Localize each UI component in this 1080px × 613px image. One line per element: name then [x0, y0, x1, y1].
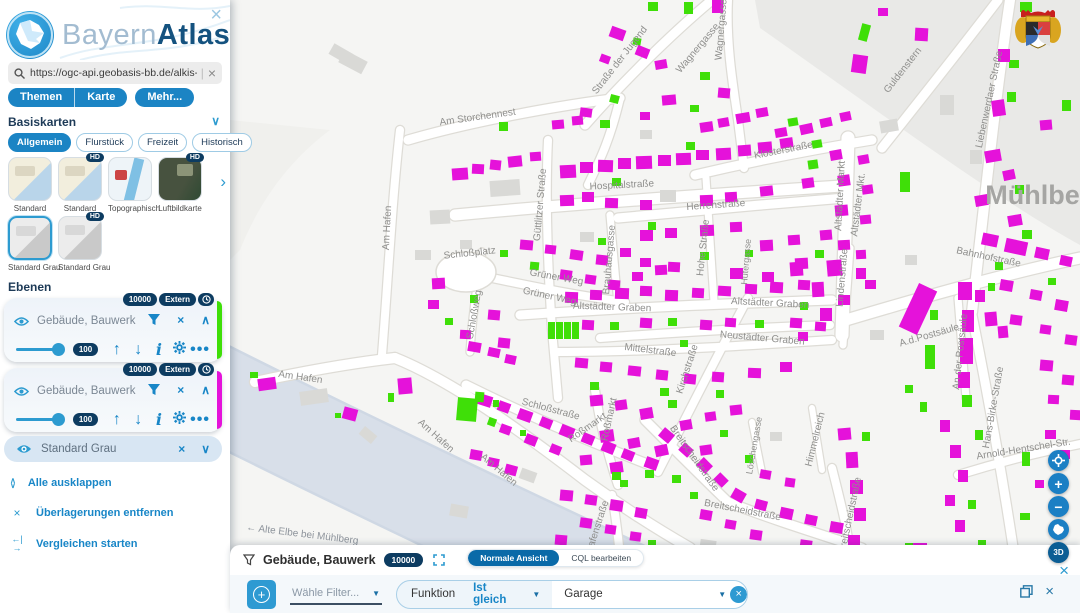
- building-footprint: [564, 322, 571, 339]
- extern-badge: Extern: [159, 363, 196, 376]
- bavaria-extent-button[interactable]: [1048, 519, 1069, 540]
- building-footprint: [760, 185, 774, 196]
- building-footprint: [820, 308, 832, 321]
- building-footprint: [730, 222, 742, 232]
- building-footprint: [1040, 119, 1053, 130]
- app-title: BayernAtlas: [62, 19, 230, 52]
- building-footprint: [759, 469, 771, 480]
- building-footprint: [851, 54, 868, 74]
- basemap-luftbildkarte[interactable]: HD Luftbildkarte: [158, 157, 202, 213]
- street-label: Am Hafen: [381, 205, 394, 250]
- layer-info-icon[interactable]: i: [149, 340, 169, 359]
- building-footprint: [1020, 513, 1030, 520]
- building-footprint: [686, 142, 695, 150]
- bayernatlas-app: Am StorchennestStraße der JugendWagnerga…: [0, 0, 1080, 613]
- basemap-standard[interactable]: Standard: [8, 157, 52, 213]
- opacity-slider[interactable]: [16, 418, 59, 421]
- app-title-bold: Atlas: [157, 19, 230, 51]
- building-footprint: [598, 160, 613, 173]
- basemap-thumbnail: [158, 157, 202, 201]
- tab-flurstueck[interactable]: Flurstück: [76, 133, 133, 152]
- sidebar-panel: × BayernAtlas | × T: [0, 0, 230, 613]
- building-footprint: [580, 232, 594, 242]
- building-footprint: [988, 283, 995, 291]
- link-label: Alle ausklappen: [28, 477, 112, 489]
- building-footprint: [662, 94, 677, 105]
- building-footprint: [699, 444, 712, 456]
- app-title-light: Bayern: [62, 19, 157, 51]
- nav-karte-button[interactable]: Karte: [74, 88, 127, 107]
- base-layer-row[interactable]: Standard Grau × ∨: [4, 436, 222, 462]
- building-footprint: [600, 361, 613, 372]
- building-footprint: [656, 369, 669, 380]
- layer-color-stripe-magenta: [217, 371, 222, 429]
- building-footprint: [787, 117, 798, 127]
- building-footprint: [690, 492, 698, 499]
- building-footprint: [1007, 92, 1016, 102]
- building-footprint: [862, 432, 870, 441]
- basemap-label: Luftbildkarte: [158, 204, 202, 213]
- basemaps-heading: Basiskarten: [8, 115, 76, 129]
- building-footprint: [760, 240, 774, 252]
- cql-edit-toggle[interactable]: CQL bearbeiten: [559, 550, 643, 566]
- search-icon: [14, 68, 25, 79]
- building-footprint: [748, 368, 761, 378]
- bavaria-shape-icon: [1053, 524, 1064, 535]
- building-footprint: [600, 120, 610, 128]
- building-footprint: [609, 499, 623, 512]
- building-footprint: [749, 529, 762, 541]
- normal-view-toggle[interactable]: Normale Ansicht: [468, 550, 559, 566]
- filter-value-input[interactable]: [564, 588, 718, 600]
- building-footprint: [335, 413, 341, 418]
- clock-icon: [202, 365, 211, 374]
- building-footprint: [718, 286, 732, 297]
- tab-freizeit[interactable]: Freizeit: [138, 133, 187, 152]
- building-footprint: [660, 190, 676, 202]
- building-footprint: [1022, 230, 1032, 239]
- building-footprint: [829, 149, 843, 161]
- building-footprint: [432, 278, 446, 290]
- basemap-label: Standard: [8, 204, 52, 213]
- building-footprint: [560, 165, 577, 179]
- building-footprint: [725, 318, 737, 328]
- building-footprint: [665, 228, 677, 238]
- building-footprint: [915, 28, 929, 42]
- nav-group: Themen Karte: [8, 88, 127, 107]
- building-footprint: [730, 404, 743, 415]
- expand-base-layer-icon[interactable]: ∨: [201, 442, 210, 456]
- building-footprint: [878, 8, 888, 16]
- building-footprint: [738, 145, 752, 157]
- time-badge: [198, 363, 214, 376]
- building-footprint: [609, 461, 623, 474]
- move-layer-up-icon[interactable]: ↑: [106, 411, 127, 429]
- building-footprint: [1062, 100, 1071, 111]
- building-footprint: [648, 2, 658, 11]
- building-footprint: [700, 72, 710, 80]
- filter-builder-row: + Wähle Filter... ▼ Funktion Ist gleich …: [230, 575, 1080, 613]
- building-footprint: [397, 377, 412, 394]
- building-footprint: [801, 177, 814, 189]
- building-footprint: [430, 209, 451, 224]
- building-footprint: [572, 116, 584, 126]
- building-footprint: [640, 130, 652, 139]
- filter-funnel-icon[interactable]: [148, 384, 160, 396]
- filter-panel: Gebäude, Bauwerk 10000 Normale Ansicht C…: [230, 545, 1080, 613]
- basemap-standard-grau[interactable]: Standard Grau: [8, 216, 52, 272]
- bayernatlas-logo-icon: [6, 11, 54, 59]
- building-footprint: [684, 2, 693, 14]
- building-footprint: [724, 519, 736, 530]
- building-footprint: [493, 400, 499, 407]
- slider-handle[interactable]: [52, 343, 65, 356]
- layer-settings-icon[interactable]: [169, 411, 190, 429]
- building-footprint: [520, 430, 526, 436]
- building-footprint: [640, 230, 653, 241]
- building-footprint: [636, 156, 652, 170]
- building-footprint: [692, 288, 705, 299]
- building-footprint: [712, 372, 725, 383]
- building-footprint: [1062, 374, 1075, 385]
- building-footprint: [640, 200, 652, 210]
- building-footprint: [780, 362, 792, 372]
- building-footprint: [795, 258, 809, 270]
- layer-color-stripe-green: [217, 301, 222, 359]
- extern-badge: Extern: [159, 293, 196, 306]
- move-layer-down-icon[interactable]: ↓: [128, 341, 149, 359]
- building-footprint: [250, 372, 258, 378]
- layer-title: Gebäude, Bauwerk: [37, 385, 135, 397]
- building-footprint: [488, 309, 501, 320]
- building-footprint: [584, 494, 597, 506]
- plus-circle-icon: +: [253, 586, 270, 603]
- hd-badge: HD: [186, 153, 204, 162]
- zoom-out-button[interactable]: −: [1048, 496, 1069, 517]
- tab-historisch[interactable]: Historisch: [192, 133, 252, 152]
- building-footprint: [472, 164, 485, 175]
- building-footprint: [672, 475, 681, 483]
- building-footprint: [788, 235, 801, 246]
- building-footprint: [668, 318, 677, 326]
- layer-badges: 10000 Extern: [123, 293, 214, 306]
- building-footprint: [997, 326, 1008, 339]
- building-footprint: [905, 385, 913, 393]
- building-footprint: [610, 322, 619, 330]
- collapse-layer-icon[interactable]: ∧: [201, 383, 210, 397]
- layer-settings-icon[interactable]: [169, 341, 190, 359]
- building-footprint: [975, 290, 985, 302]
- building-footprint: [690, 105, 699, 112]
- building-footprint: [699, 509, 713, 521]
- building-footprint: [452, 167, 469, 180]
- building-footprint: [615, 288, 629, 299]
- remove-layer-icon[interactable]: ×: [177, 313, 184, 327]
- panel-window-icons: ×: [1020, 583, 1054, 600]
- opacity-slider[interactable]: [16, 348, 59, 351]
- building-footprint: [857, 154, 869, 165]
- basemap-label: Standard Grau: [58, 263, 102, 272]
- building-footprint: [920, 402, 927, 412]
- filter-attribute-label: Funktion: [411, 588, 455, 600]
- building-footprint: [640, 112, 650, 120]
- choose-filter-dropdown[interactable]: Wähle Filter... ▼: [290, 583, 382, 605]
- building-footprint: [499, 122, 508, 131]
- nav-mehr-button[interactable]: Mehr...: [135, 88, 194, 107]
- scale-badge: 10000: [123, 293, 157, 306]
- building-footprint: [970, 150, 982, 164]
- remove-overlays-link[interactable]: × Überlagerungen entfernen: [10, 507, 174, 519]
- fullscreen-icon[interactable]: [433, 554, 445, 566]
- basemap-standard-hd[interactable]: HD Standard: [58, 157, 102, 213]
- clear-search-icon[interactable]: ×: [208, 65, 216, 81]
- choose-filter-label: Wähle Filter...: [292, 587, 359, 599]
- building-footprint: [812, 282, 825, 298]
- chevron-down-icon[interactable]: ∨: [211, 114, 220, 128]
- building-footprint: [820, 229, 833, 240]
- building-footprint: [999, 279, 1014, 292]
- building-footprint: [958, 470, 968, 482]
- building-footprint: [629, 531, 641, 541]
- layer-more-icon[interactable]: •••: [190, 341, 210, 359]
- compare-arrows-icon: ←|→: [10, 535, 24, 553]
- building-footprint: [500, 250, 508, 257]
- building-footprint: [655, 265, 668, 276]
- building-footprint: [590, 382, 599, 390]
- gear-icon: [173, 411, 186, 424]
- building-footprint: [807, 159, 818, 169]
- chevron-down-icon: ▼: [532, 590, 540, 599]
- building-footprint: [1035, 480, 1044, 488]
- building-footprint: [590, 394, 604, 406]
- building-footprint: [498, 337, 511, 348]
- remove-base-layer-icon[interactable]: ×: [178, 442, 185, 456]
- building-footprint: [582, 192, 594, 202]
- building-footprint: [940, 95, 954, 115]
- bavaria-coat-of-arms-icon: [1014, 8, 1062, 50]
- filter-scale-badge: 10000: [384, 553, 424, 567]
- search-input[interactable]: [30, 67, 197, 79]
- basemap-topographisch[interactable]: Topographisch: [108, 157, 152, 213]
- building-footprint: [530, 152, 542, 162]
- building-footprint: [580, 162, 593, 173]
- building-footprint: [1048, 278, 1056, 285]
- chevron-down-icon: ▼: [372, 589, 380, 598]
- chevron-down-icon: ▼: [718, 590, 726, 599]
- building-footprint: [569, 249, 583, 261]
- building-footprint: [955, 520, 965, 532]
- main-nav: Themen Karte Mehr...: [8, 88, 194, 107]
- building-footprint: [618, 158, 631, 169]
- layer-badges: 10000 Extern: [123, 363, 214, 376]
- building-footprint: [815, 250, 824, 258]
- building-footprint: [665, 290, 678, 301]
- building-footprint: [582, 320, 595, 331]
- scale-badge: 10000: [123, 363, 157, 376]
- building-footprint: [572, 322, 579, 339]
- building-footprint: [1040, 359, 1054, 371]
- building-footprint: [257, 377, 276, 391]
- building-footprint: [648, 222, 656, 230]
- building-footprint: [925, 345, 935, 369]
- geolocate-button[interactable]: [1048, 450, 1069, 471]
- building-footprint: [580, 454, 593, 465]
- link-label: Überlagerungen entfernen: [36, 507, 174, 519]
- building-footprint: [716, 148, 732, 161]
- building-footprint: [900, 172, 910, 192]
- building-footprint: [984, 312, 997, 327]
- building-footprint: [720, 430, 728, 437]
- building-footprint: [958, 282, 972, 300]
- building-footprint: [676, 153, 691, 166]
- building-footprint: [668, 400, 677, 408]
- basemap-thumbnails-row2: Standard Grau HD Standard Grau: [8, 216, 102, 272]
- start-compare-link[interactable]: ←|→ Vergleichen starten: [10, 535, 138, 553]
- building-footprint: [945, 495, 955, 506]
- layers-heading: Ebenen: [8, 280, 51, 294]
- clock-icon: [202, 295, 211, 304]
- building-footprint: [560, 195, 574, 206]
- basemap-thumbnail: [58, 157, 102, 201]
- close-icon[interactable]: ×: [1045, 583, 1054, 600]
- building-footprint: [940, 420, 950, 432]
- building-footprint: [628, 365, 642, 376]
- building-footprint: [815, 322, 827, 332]
- building-footprint: [645, 470, 654, 478]
- layer-info-icon[interactable]: i: [149, 410, 169, 429]
- building-footprint: [490, 159, 502, 170]
- app-logo[interactable]: BayernAtlas: [6, 8, 230, 62]
- gear-icon: [173, 341, 186, 354]
- building-footprint: [489, 179, 520, 197]
- basemap-label: Standard Grau: [8, 263, 52, 272]
- layer-card-gebaeude-1[interactable]: 10000 Extern Gebäude, Bauwerk: [4, 298, 222, 362]
- building-footprint: [552, 119, 565, 129]
- base-layer-title: Standard Grau: [41, 443, 178, 455]
- visibility-eye-icon[interactable]: [14, 316, 29, 327]
- building-footprint: [605, 198, 618, 208]
- building-footprint: [755, 320, 764, 328]
- building-footprint: [620, 480, 628, 487]
- building-footprint: [950, 445, 961, 458]
- building-footprint: [846, 452, 859, 469]
- building-footprint: [668, 262, 681, 273]
- view-toggle: Normale Ansicht CQL bearbeiten: [467, 549, 644, 567]
- filter-funnel-outline-icon: [243, 554, 255, 566]
- basemap-thumbnail: [8, 216, 52, 260]
- building-footprint: [584, 274, 596, 284]
- building-footprint: [560, 489, 574, 501]
- collapse-layer-icon[interactable]: ∧: [201, 313, 210, 327]
- tab-allgemein[interactable]: Allgemein: [8, 133, 71, 152]
- building-footprint: [716, 390, 724, 398]
- building-footprint: [770, 432, 782, 441]
- building-footprint: [968, 500, 976, 509]
- building-footprint: [388, 393, 394, 402]
- street-label: Mühlberg: [985, 180, 1080, 210]
- 3d-view-button[interactable]: 3D: [1048, 542, 1069, 563]
- building-footprint: [640, 318, 653, 329]
- basemap-thumbnail: [108, 157, 152, 201]
- nav-themen-button[interactable]: Themen: [8, 88, 74, 107]
- building-footprint: [445, 318, 453, 325]
- move-layer-down-icon[interactable]: ↓: [128, 411, 149, 429]
- layer-title: Gebäude, Bauwerk: [37, 315, 135, 327]
- search-bar[interactable]: | ×: [8, 62, 222, 84]
- building-footprint: [507, 155, 522, 167]
- building-footprint: [1039, 324, 1051, 334]
- opacity-value: 100: [73, 413, 98, 426]
- basemap-label: Topographisch: [108, 204, 152, 213]
- building-footprint: [612, 472, 621, 480]
- close-icon: ×: [10, 507, 24, 519]
- geolocate-icon: [1052, 454, 1065, 467]
- building-footprint: [658, 155, 671, 166]
- filter-layer-title: Gebäude, Bauwerk: [263, 553, 376, 567]
- layer-more-icon[interactable]: •••: [190, 411, 210, 429]
- building-footprint: [640, 286, 652, 296]
- building-footprint: [1045, 430, 1056, 439]
- visibility-eye-icon[interactable]: [16, 443, 32, 455]
- filter-panel-header: Gebäude, Bauwerk 10000 Normale Ansicht C…: [230, 545, 1080, 575]
- move-layer-up-icon[interactable]: ↑: [106, 341, 127, 359]
- filter-funnel-icon[interactable]: [148, 314, 160, 326]
- building-footprint: [660, 388, 669, 396]
- basemap-thumbnail: [8, 157, 52, 201]
- building-footprint: [1009, 60, 1019, 68]
- slider-handle[interactable]: [52, 413, 65, 426]
- filter-operator-dropdown[interactable]: Ist gleich: [473, 582, 506, 606]
- building-footprint: [762, 272, 774, 282]
- building-footprint: [555, 534, 568, 545]
- basemap-standard-grau-hd[interactable]: HD Standard Grau: [58, 216, 102, 272]
- detach-window-icon[interactable]: [1020, 585, 1033, 598]
- building-footprint: [962, 395, 972, 407]
- building-footprint: [579, 517, 592, 529]
- clear-value-icon[interactable]: ×: [730, 586, 747, 603]
- zoom-in-button[interactable]: +: [1048, 473, 1069, 494]
- building-footprint: [856, 268, 866, 279]
- hd-badge: HD: [86, 212, 104, 221]
- building-footprint: [870, 330, 884, 340]
- building-footprint: [634, 507, 648, 519]
- visibility-eye-icon[interactable]: [14, 386, 29, 397]
- basemap-thumbnail: [58, 216, 102, 260]
- basemap-category-tabs: Allgemein Flurstück Freizeit Historisch: [8, 133, 252, 152]
- building-footprint: [556, 322, 563, 339]
- basemap-thumbnails-row1: Standard HD Standard Topographisch HD Lu…: [8, 157, 202, 213]
- layer-card-gebaeude-2[interactable]: 10000 Extern Gebäude, Bauwerk: [4, 368, 222, 432]
- expand-all-link[interactable]: ∧∨ Alle ausklappen: [10, 477, 112, 489]
- building-footprint: [718, 87, 731, 98]
- building-footprint: [700, 320, 713, 331]
- building-footprint: [604, 524, 616, 534]
- building-footprint: [717, 117, 729, 128]
- filter-condition-group: Funktion Ist gleich ▼ ▼ ×: [396, 580, 748, 609]
- remove-layer-icon[interactable]: ×: [177, 383, 184, 397]
- building-footprint: [1070, 410, 1080, 421]
- filter-value-field[interactable]: ▼ ×: [552, 581, 748, 608]
- building-footprint: [905, 255, 917, 265]
- add-filter-button[interactable]: +: [247, 580, 276, 609]
- building-footprint: [545, 244, 557, 254]
- thumbnails-next-icon[interactable]: ›: [220, 172, 226, 192]
- building-footprint: [680, 340, 688, 347]
- building-footprint: [1048, 395, 1059, 405]
- expand-all-icon: ∧∨: [10, 478, 16, 488]
- link-label: Vergleichen starten: [36, 538, 138, 550]
- building-footprint: [696, 150, 709, 160]
